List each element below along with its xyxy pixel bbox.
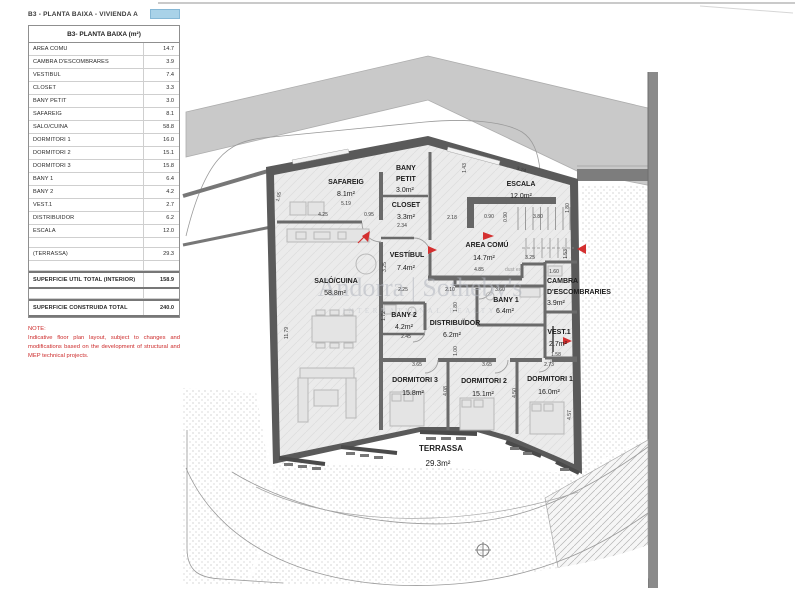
row-value: 2.7 — [143, 199, 179, 211]
room-label-closet: CLOSET — [392, 202, 421, 209]
top-right-faint-line — [700, 6, 793, 13]
row-label: CLOSET — [29, 85, 143, 91]
room-label-cambra-2: D'ESCOMBRARIES — [547, 289, 611, 296]
table-row: BANY 16.4 — [29, 173, 179, 186]
dim-label: 1.72 — [381, 311, 387, 321]
terrain-stipple-right — [581, 185, 648, 470]
disclaimer-note: NOTE: Indicative floor plan layout, subj… — [28, 325, 180, 361]
row-label: VESTÍBUL — [29, 72, 143, 78]
table-row: ESCALA12.0 — [29, 225, 179, 238]
table-spacer — [29, 289, 179, 299]
dim-label: 2.73 — [544, 362, 554, 368]
retaining-wall-right — [577, 169, 649, 181]
dim-label: 1.43 — [462, 163, 468, 173]
row-label: DORMITORI 2 — [29, 150, 143, 156]
row-value: 240.0 — [143, 301, 179, 315]
room-label-bany2: BANY 2 — [391, 312, 417, 319]
dim-label: 1.58 — [551, 352, 561, 358]
dim-label: 1.80 — [453, 302, 459, 312]
row-value: 29.3 — [143, 248, 179, 260]
stair-wall-leg — [467, 197, 474, 228]
room-area-salo: 58.8m² — [324, 290, 346, 297]
row-value: 6.4 — [143, 173, 179, 185]
row-label: SUPERFICIE CONSTRUIDA TOTAL — [29, 305, 143, 311]
room-label-safareig: SAFAREIG — [328, 179, 364, 186]
row-label: AREA COMÚ — [29, 46, 143, 52]
retaining-wall-left-lower — [183, 226, 276, 245]
dim-label: 2.45 — [401, 334, 411, 340]
row-label: DORMITORI 3 — [29, 163, 143, 169]
boundary-bar-right — [648, 72, 658, 588]
row-value: 3.3 — [143, 82, 179, 94]
table-row: SALÓ/CUINA58.8 — [29, 121, 179, 134]
dim-label: 1.00 — [453, 346, 459, 356]
room-area-dorm2: 15.1m² — [472, 391, 494, 398]
room-area-closet: 3.3m² — [397, 214, 416, 221]
row-label: DISTRIBUIDOR — [29, 215, 143, 221]
legend-panel: B3 - PLANTA BAIXA - VIVIENDA A B3- PLANT… — [28, 8, 180, 361]
dim-label: 4.50 — [512, 388, 518, 398]
room-label-vestibul: VESTÍBUL — [390, 250, 425, 259]
row-value: 3.9 — [143, 56, 179, 68]
table-spacer — [29, 261, 179, 271]
row-label: CAMBRA D'ESCOMBRARES — [29, 59, 143, 65]
dim-label: 1.53 — [563, 249, 569, 259]
row-value: 158.9 — [143, 273, 179, 287]
room-area-vestibul: 7.4m² — [397, 265, 416, 272]
watermark-line2: INTERNATIONAL REALTY — [343, 307, 497, 315]
room-area-cambra: 3.9m² — [547, 300, 566, 307]
room-area-bany1: 6.4m² — [496, 308, 515, 315]
dim-label: 4.25 — [318, 212, 328, 218]
row-value: 14.7 — [143, 43, 179, 55]
room-label-escala: ESCALA — [507, 181, 536, 188]
table-row-total-construida: SUPERFICIE CONSTRUIDA TOTAL240.0 — [29, 299, 179, 317]
retaining-wall-left-upper — [183, 171, 268, 196]
room-label-distribuidor: DISTRIBUÏDOR — [430, 319, 481, 327]
room-area-distribuidor: 6.2m² — [443, 332, 462, 339]
room-label-cambra-1: CAMBRA — [547, 278, 578, 285]
table-row: SAFAREIG8.1 — [29, 108, 179, 121]
row-value: 16.0 — [143, 134, 179, 146]
row-label: VEST.1 — [29, 202, 143, 208]
room-area-bany2: 4.2m² — [395, 324, 414, 331]
row-label: BANY PETIT — [29, 98, 143, 104]
room-area-escala: 12.0m² — [510, 193, 532, 200]
drawing-title: B3 - PLANTA BAIXA - VIVIENDA A — [28, 11, 138, 18]
table-row: CLOSET3.3 — [29, 82, 179, 95]
dim-label: 3.60 — [495, 287, 505, 293]
dim-label: 3.65 — [482, 362, 492, 368]
dim-label: 11.79 — [284, 327, 290, 339]
dim-label: 5.19 — [341, 201, 351, 207]
floorplan-page: Andorra | Sotheby's INTERNATIONAL REALTY… — [0, 0, 800, 600]
area-table: B3- PLANTA BAIXA (m²) AREA COMÚ14.7 CAMB… — [28, 25, 180, 318]
room-area-bany-petit: 3.0m² — [396, 187, 415, 194]
stair-note-text: dust es — [505, 267, 522, 273]
area-table-header: B3- PLANTA BAIXA (m²) — [29, 26, 179, 43]
table-row: VEST.12.7 — [29, 199, 179, 212]
dim-label: 4.57 — [567, 410, 573, 420]
row-value: 4.2 — [143, 186, 179, 198]
note-title: NOTE: — [28, 325, 180, 334]
room-area-vest1: 2.7m² — [549, 341, 568, 348]
row-label: SALÓ/CUINA — [29, 124, 143, 130]
table-row: BANY PETIT3.0 — [29, 95, 179, 108]
dim-label: 2.34 — [397, 223, 407, 229]
table-row: DORMITORI 116.0 — [29, 134, 179, 147]
drawing-title-row: B3 - PLANTA BAIXA - VIVIENDA A — [28, 8, 180, 20]
table-row-terrassa: (TERRASSA)29.3 — [29, 248, 179, 261]
room-label-bany-petit-2: PETIT — [396, 176, 417, 183]
unit-color-swatch — [150, 9, 180, 19]
dim-label: 3.25 — [525, 255, 535, 261]
table-row: DORMITORI 215.1 — [29, 147, 179, 160]
table-row-total-util: SUPERFICIE UTIL TOTAL (INTERIOR)158.9 — [29, 271, 179, 289]
room-label-dorm2: DORMITORI 2 — [461, 378, 507, 385]
row-label: SAFAREIG — [29, 111, 143, 117]
room-label-area-comu: AREA COMÚ — [466, 240, 509, 249]
dim-label: 4.85 — [474, 267, 484, 273]
note-body: Indicative floor plan layout, subject to… — [28, 334, 180, 361]
table-spacer — [29, 238, 179, 248]
row-value: 58.8 — [143, 121, 179, 133]
row-value: 6.2 — [143, 212, 179, 224]
room-area-safareig: 8.1m² — [337, 191, 356, 198]
dim-label: 3.65 — [412, 362, 422, 368]
row-value: 15.8 — [143, 160, 179, 172]
row-label: BANY 1 — [29, 176, 143, 182]
table-row: DORMITORI 315.8 — [29, 160, 179, 173]
room-area-dorm1: 16.0m² — [538, 389, 560, 396]
row-value: 15.1 — [143, 147, 179, 159]
room-label-bany1: BANY 1 — [493, 297, 519, 304]
room-area-terrassa: 29.3m² — [426, 459, 451, 468]
table-row: CAMBRA D'ESCOMBRARES3.9 — [29, 56, 179, 69]
row-label: BANY 2 — [29, 189, 143, 195]
table-row: DISTRIBUIDOR6.2 — [29, 212, 179, 225]
row-value: 3.0 — [143, 95, 179, 107]
room-label-salo: SALÓ/CUINA — [314, 276, 358, 285]
room-label-terrassa: TERRASSA — [419, 444, 463, 453]
row-value: 12.0 — [143, 225, 179, 237]
room-label-dorm3: DORMITORI 3 — [392, 377, 438, 384]
dim-label: 2.25 — [398, 287, 408, 293]
room-label-bany-petit-1: BANY — [396, 165, 416, 172]
dim-label: 0.90 — [484, 214, 494, 220]
dim-label: 0.90 — [503, 212, 509, 222]
dim-label: 3.25 — [382, 262, 388, 272]
room-area-area-comu: 14.7m² — [473, 255, 495, 262]
row-label: ESCALA — [29, 228, 143, 234]
dim-label: 4.08 — [443, 386, 449, 396]
row-value: 8.1 — [143, 108, 179, 120]
room-area-dorm3: 15.8m² — [402, 390, 424, 397]
row-label: DORMITORI 1 — [29, 137, 143, 143]
dim-label: 1.80 — [565, 203, 571, 213]
dim-label: 2.18 — [447, 215, 457, 221]
dim-label: 3.80 — [533, 214, 543, 220]
table-row: VESTÍBUL7.4 — [29, 69, 179, 82]
room-label-vest1: VEST.1 — [547, 329, 570, 336]
row-value: 7.4 — [143, 69, 179, 81]
dim-label: 1.60 — [549, 269, 559, 275]
row-label: (TERRASSA) — [29, 251, 143, 257]
row-label: SUPERFICIE UTIL TOTAL (INTERIOR) — [29, 277, 143, 283]
table-row: AREA COMÚ14.7 — [29, 43, 179, 56]
dim-label: 0.95 — [364, 212, 374, 218]
room-label-dorm1: DORMITORI 1 — [527, 376, 573, 383]
table-row: BANY 24.2 — [29, 186, 179, 199]
dim-label: 2.10 — [445, 287, 455, 293]
